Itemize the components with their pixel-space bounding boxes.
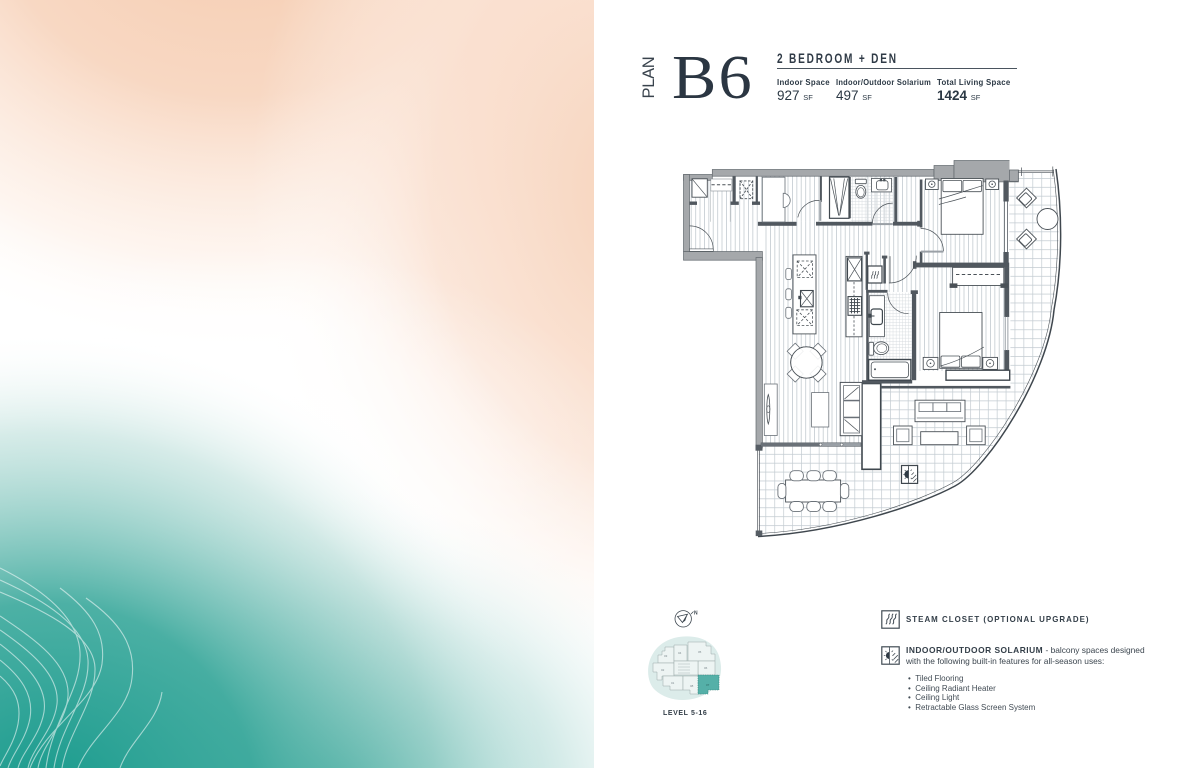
svg-text:06: 06 xyxy=(704,666,708,670)
svg-text:05: 05 xyxy=(698,650,702,654)
svg-text:04: 04 xyxy=(678,651,682,655)
svg-text:01: 01 xyxy=(671,681,675,685)
svg-text:08: 08 xyxy=(690,684,694,688)
svg-text:07: 07 xyxy=(706,683,710,687)
svg-text:03: 03 xyxy=(664,654,668,658)
svg-text:02: 02 xyxy=(661,668,665,672)
svg-text:N: N xyxy=(694,610,698,616)
